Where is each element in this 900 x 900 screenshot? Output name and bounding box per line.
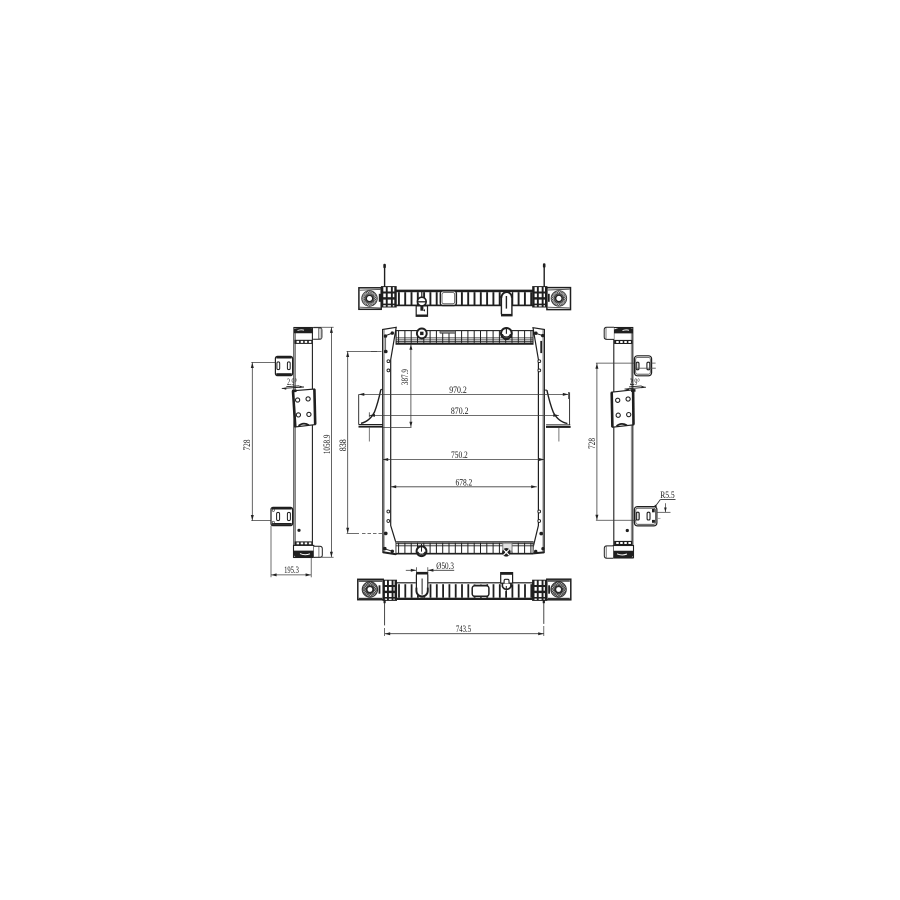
svg-text:195.3: 195.3 (284, 565, 299, 576)
svg-text:838: 838 (338, 439, 349, 451)
svg-text:970.2: 970.2 (449, 385, 467, 396)
svg-text:750.2: 750.2 (451, 450, 468, 461)
svg-text:728: 728 (587, 438, 598, 449)
svg-text:728: 728 (242, 439, 253, 450)
svg-text:Ø50.3: Ø50.3 (436, 561, 454, 572)
svg-text:1058.9: 1058.9 (322, 434, 333, 454)
svg-text:743.5: 743.5 (456, 624, 471, 635)
svg-text:678.2: 678.2 (456, 477, 473, 488)
svg-text:387.9: 387.9 (400, 369, 411, 385)
svg-text:870.2: 870.2 (451, 406, 469, 417)
